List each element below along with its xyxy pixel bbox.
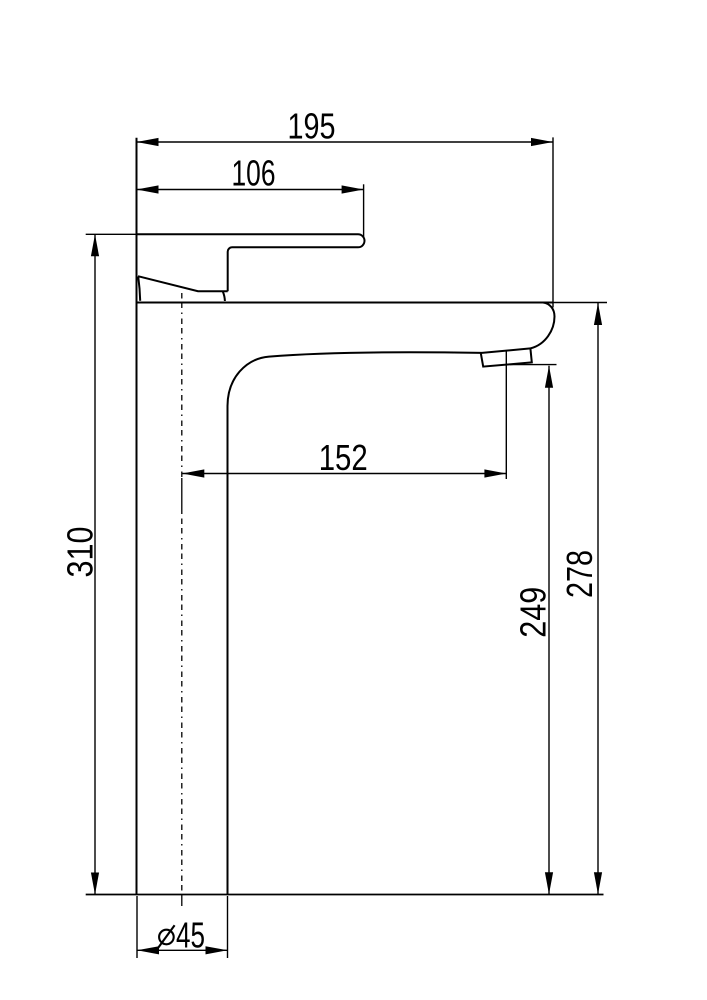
- svg-text:195: 195: [288, 106, 336, 147]
- svg-text:152: 152: [319, 437, 368, 478]
- svg-text:310: 310: [60, 527, 101, 578]
- svg-text:249: 249: [513, 587, 554, 638]
- svg-text:278: 278: [559, 550, 600, 598]
- svg-text:45: 45: [176, 915, 205, 956]
- svg-text:106: 106: [232, 153, 276, 194]
